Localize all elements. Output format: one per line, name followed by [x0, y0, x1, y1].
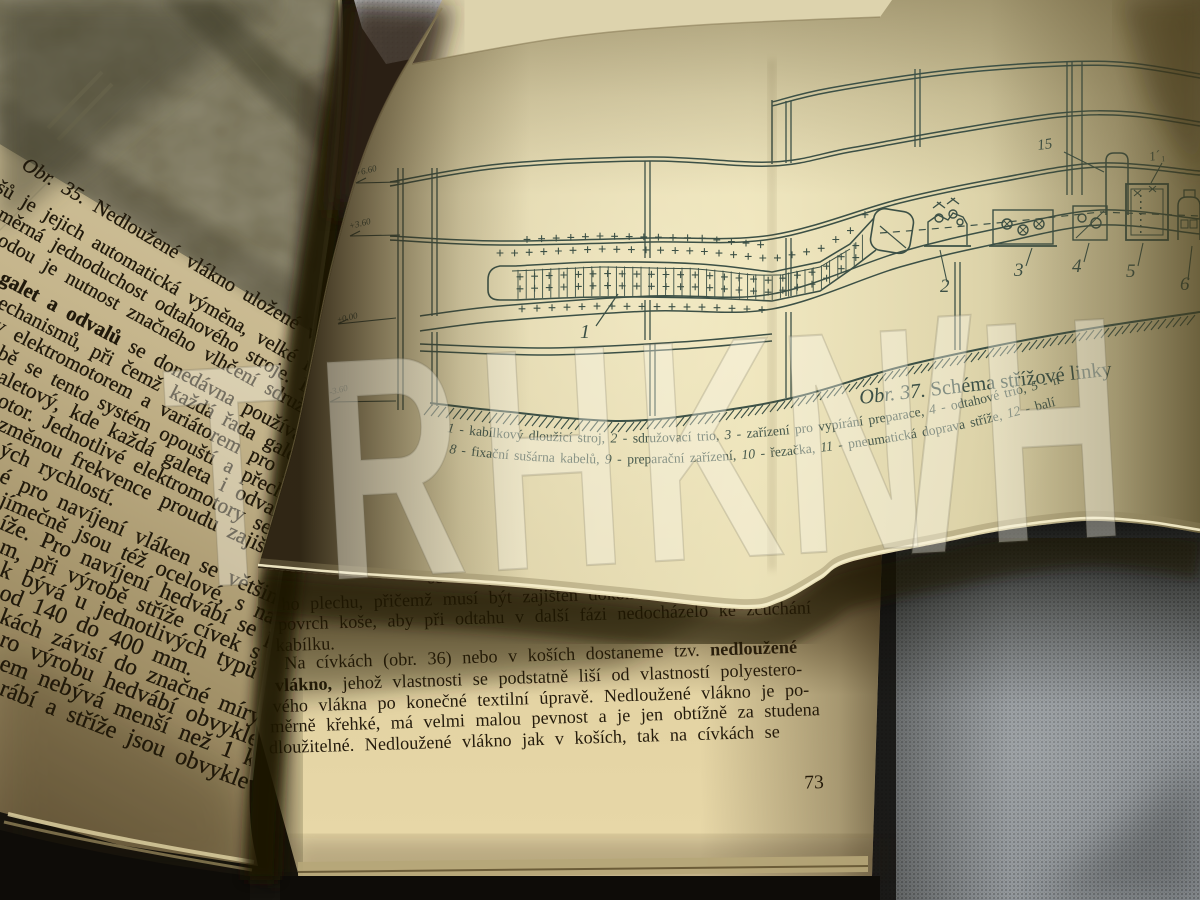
svg-text:H: H [470, 277, 633, 637]
svg-text:H: H [970, 249, 1133, 609]
svg-text:R: R [310, 286, 473, 646]
svg-text:T: T [157, 296, 298, 655]
svg-text:K: K [626, 268, 789, 628]
